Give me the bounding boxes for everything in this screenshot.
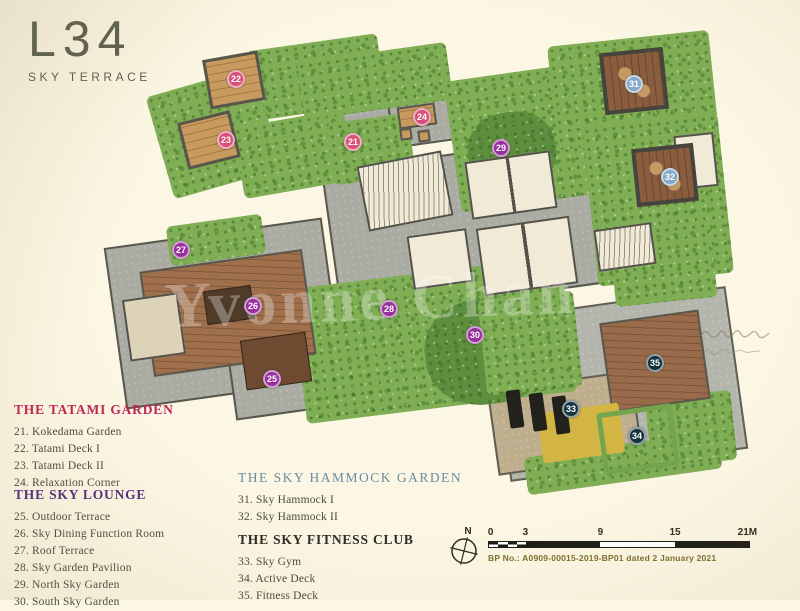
bp-number-text: BP No.: A0909-00015-2019-BP01 dated 2 Ja… <box>488 553 750 563</box>
plan-marker-32: 32 <box>661 168 679 186</box>
plan-relax-seat-2 <box>417 129 431 143</box>
legend-item-26: 26. Sky Dining Function Room <box>14 526 164 543</box>
compass-north-label: N <box>464 526 471 537</box>
scale-bar-strip <box>488 541 750 548</box>
legend-item-35: 35. Fitness Deck <box>238 588 414 605</box>
legend-item-30: 30. South Sky Garden <box>14 594 164 611</box>
level-subtitle: SKY TERRACE <box>28 70 151 84</box>
scale-segment <box>517 542 526 547</box>
title-block: L34 SKY TERRACE <box>28 14 151 84</box>
legend-item-25: 25. Outdoor Terrace <box>14 509 164 526</box>
scale-label-9: 9 <box>598 527 604 538</box>
plan-marker-29: 29 <box>492 139 510 157</box>
legend-item-28: 28. Sky Garden Pavilion <box>14 560 164 577</box>
plan-marker-33: 33 <box>562 400 580 418</box>
plan-green-fitness-west <box>477 290 583 396</box>
scale-segment <box>498 542 507 547</box>
plan-marker-25: 25 <box>263 370 281 388</box>
plan-marker-31: 31 <box>625 75 643 93</box>
legend-heading-sky-lounge: THE SKY LOUNGE <box>14 487 164 503</box>
scale-label-3: 3 <box>523 527 529 538</box>
watermark-signature <box>697 322 777 371</box>
plan-core-lift-pair <box>464 150 557 219</box>
plan-marker-24: 24 <box>413 108 431 126</box>
legend-item-31: 31. Sky Hammock I <box>238 492 462 509</box>
plan-marker-34: 34 <box>628 427 646 445</box>
legend-items-sky-fitness-club: 33. Sky Gym34. Active Deck35. Fitness De… <box>238 554 414 605</box>
north-compass: N <box>446 524 486 573</box>
scale-label-0: 0 <box>488 527 494 538</box>
scale-label-21m: 21M <box>738 527 757 538</box>
page: { "title": { "level": "L34", "subtitle":… <box>0 0 800 600</box>
plan-marker-26: 26 <box>244 297 262 315</box>
scale-bar-labels: 0 3 9 15 21M <box>488 527 750 539</box>
plan-marker-35: 35 <box>646 354 664 372</box>
legend-item-27: 27. Roof Terrace <box>14 543 164 560</box>
legend-item-32: 32. Sky Hammock II <box>238 509 462 526</box>
plan-marker-23: 23 <box>217 131 235 149</box>
scale-segment <box>675 542 749 547</box>
plan-marker-22: 22 <box>227 70 245 88</box>
legend-item-34: 34. Active Deck <box>238 571 414 588</box>
scale-bar: 0 3 9 15 21M BP No.: A0909-00015-2019-BP… <box>488 527 750 563</box>
legend-heading-tatami-garden: THE TATAMI GARDEN <box>14 402 174 418</box>
scale-segment <box>508 542 517 547</box>
legend-items-sky-hammock-garden: 31. Sky Hammock I32. Sky Hammock II <box>238 492 462 526</box>
legend-item-29: 29. North Sky Garden <box>14 577 164 594</box>
plan-marker-21: 21 <box>344 133 362 151</box>
scale-segment <box>526 542 600 547</box>
legend-item-22: 22. Tatami Deck I <box>14 441 174 458</box>
plan-core-room <box>407 228 474 290</box>
legend-sky-fitness-club: THE SKY FITNESS CLUB 33. Sky Gym34. Acti… <box>238 532 414 605</box>
plan-core-stairs-east <box>593 222 656 272</box>
legend-item-21: 21. Kokedama Garden <box>14 424 174 441</box>
plan-marker-28: 28 <box>380 300 398 318</box>
plan-relax-seat-1 <box>399 127 413 141</box>
plan-lounge-counter <box>122 292 186 361</box>
legend-sky-lounge: THE SKY LOUNGE 25. Outdoor Terrace26. Sk… <box>14 487 164 611</box>
plan-marker-27: 27 <box>172 241 190 259</box>
scale-segment <box>600 542 674 547</box>
scale-segment <box>489 542 498 547</box>
legend-heading-sky-hammock-garden: THE SKY HAMMOCK GARDEN <box>238 470 462 486</box>
scale-label-15: 15 <box>670 527 681 538</box>
legend-items-sky-lounge: 25. Outdoor Terrace26. Sky Dining Functi… <box>14 509 164 611</box>
legend-items-tatami-garden: 21. Kokedama Garden22. Tatami Deck I23. … <box>14 424 174 492</box>
legend-sky-hammock-garden: THE SKY HAMMOCK GARDEN 31. Sky Hammock I… <box>238 470 462 526</box>
plan-core-lift-pair-2 <box>476 216 579 296</box>
legend-heading-sky-fitness-club: THE SKY FITNESS CLUB <box>238 532 414 548</box>
plan-marker-30: 30 <box>466 326 484 344</box>
legend-item-23: 23. Tatami Deck II <box>14 458 174 475</box>
legend-item-33: 33. Sky Gym <box>238 554 414 571</box>
legend-tatami-garden: THE TATAMI GARDEN 21. Kokedama Garden22.… <box>14 402 174 492</box>
level-title: L34 <box>28 14 151 64</box>
